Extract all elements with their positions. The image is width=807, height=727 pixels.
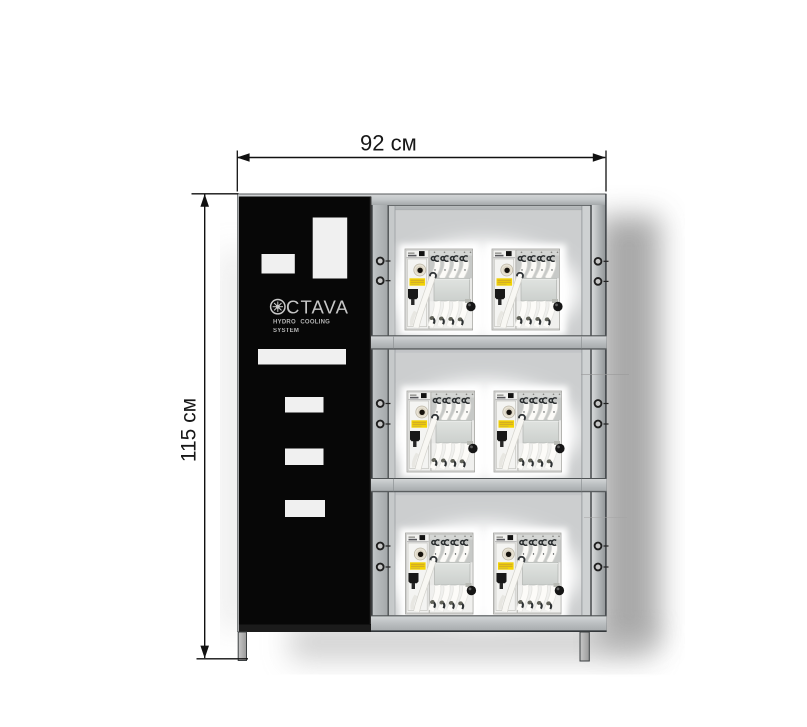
svg-text:HYDRO COOLING: HYDRO COOLING [273,320,330,326]
svg-text:115 см: 115 см [178,398,201,462]
svg-text:92 см: 92 см [360,131,417,156]
svg-text:CTAVA: CTAVA [286,297,349,318]
svg-text:SYSTEM: SYSTEM [273,328,299,334]
